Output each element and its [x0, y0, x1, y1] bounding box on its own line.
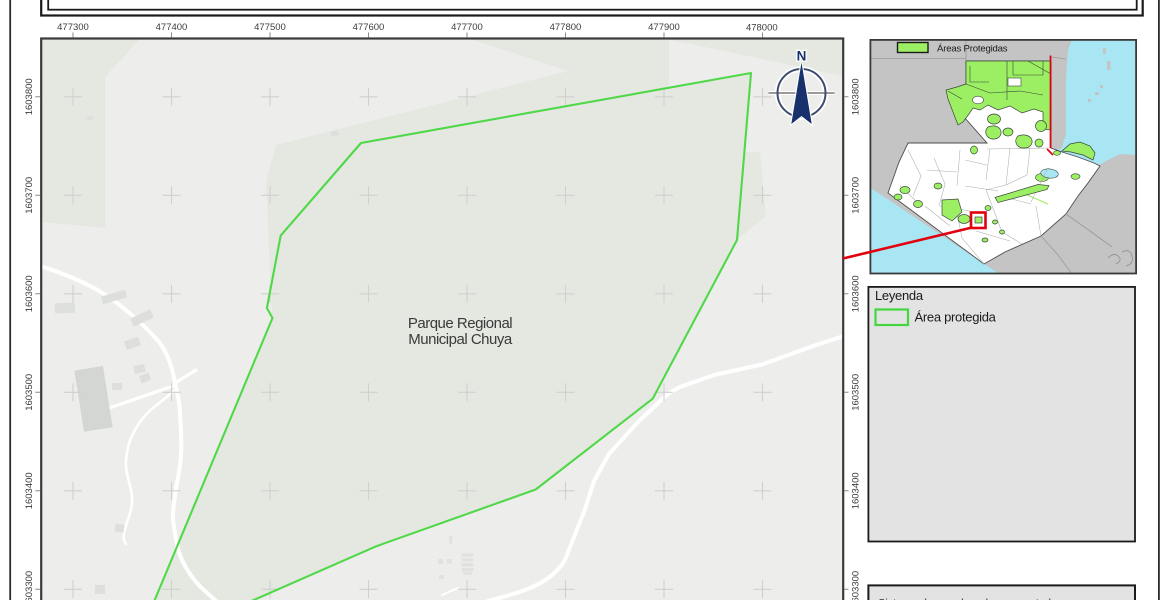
svg-text:477800: 477800 [550, 22, 582, 33]
svg-text:1603600: 1603600 [24, 275, 35, 312]
svg-text:1603800: 1603800 [24, 78, 35, 115]
svg-text:1603500: 1603500 [851, 374, 862, 411]
svg-text:Parque Regional: Parque Regional [408, 315, 512, 332]
svg-text:1603700: 1603700 [851, 177, 862, 214]
svg-text:477500: 477500 [254, 22, 286, 33]
svg-text:478000: 478000 [746, 23, 778, 34]
svg-text:477900: 477900 [648, 22, 680, 33]
svg-text:477300: 477300 [57, 22, 89, 33]
svg-text:Municipal Chuya: Municipal Chuya [408, 331, 513, 348]
svg-text:Leyenda: Leyenda [875, 288, 924, 303]
svg-text:1603400: 1603400 [24, 472, 35, 509]
svg-text:Área protegida: Área protegida [915, 310, 997, 325]
svg-text:1603600: 1603600 [851, 275, 862, 312]
svg-text:477700: 477700 [451, 22, 483, 33]
svg-text:1603300: 1603300 [24, 571, 35, 600]
svg-text:1603400: 1603400 [851, 472, 862, 509]
svg-text:477600: 477600 [353, 22, 385, 33]
svg-text:1603500: 1603500 [24, 374, 35, 411]
svg-text:N: N [797, 49, 807, 64]
svg-text:1603300: 1603300 [851, 571, 862, 600]
svg-text:1603700: 1603700 [24, 177, 35, 214]
svg-text:1603800: 1603800 [851, 78, 862, 115]
svg-text:Áreas Protegidas: Áreas Protegidas [937, 44, 1008, 55]
svg-text:477400: 477400 [156, 22, 188, 33]
